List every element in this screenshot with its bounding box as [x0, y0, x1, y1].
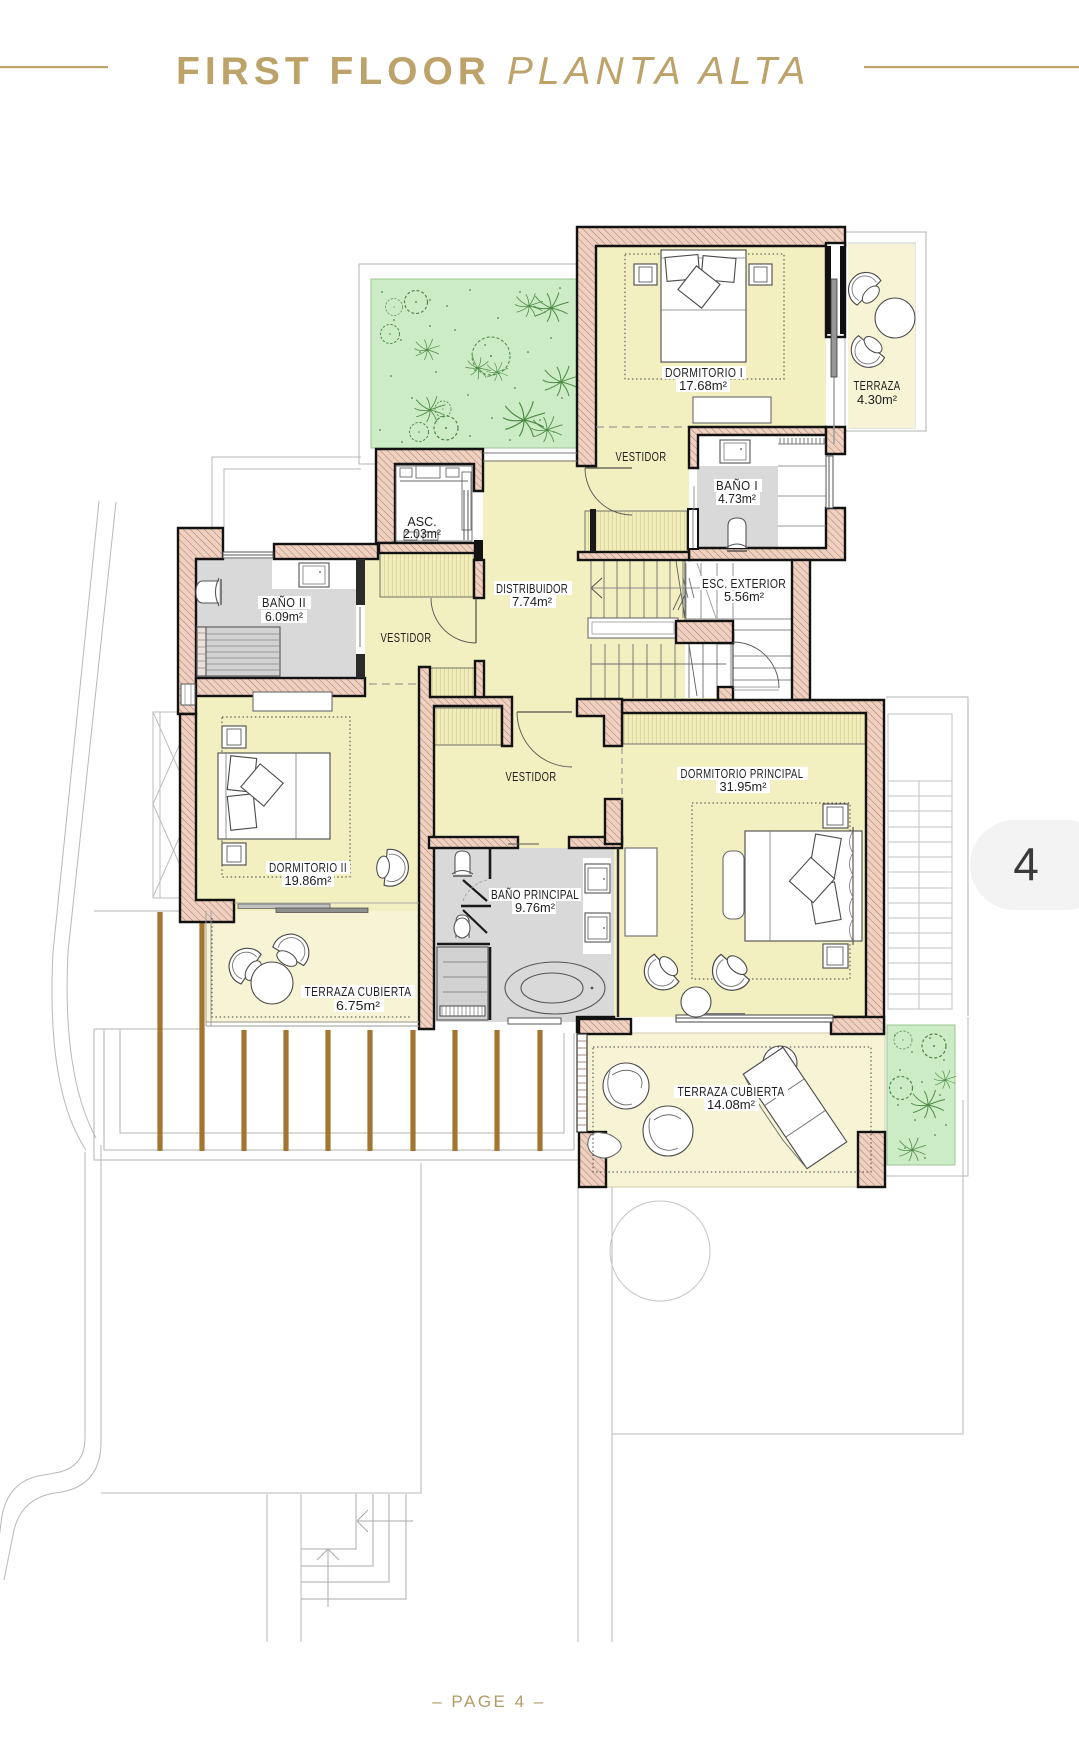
svg-text:7.74m²: 7.74m² [512, 595, 552, 609]
svg-text:VESTIDOR: VESTIDOR [506, 770, 557, 784]
svg-text:4.30m²: 4.30m² [857, 393, 897, 407]
svg-text:DORMITORIO I: DORMITORIO I [665, 366, 743, 380]
svg-text:5.56m²: 5.56m² [724, 590, 764, 604]
svg-text:4.73m²: 4.73m² [718, 492, 756, 506]
svg-text:TERRAZA CUBIERTA: TERRAZA CUBIERTA [305, 985, 412, 999]
svg-text:TERRAZA: TERRAZA [854, 379, 901, 393]
svg-text:17.68m²: 17.68m² [679, 379, 727, 393]
svg-text:4: 4 [1013, 838, 1039, 890]
svg-text:– PAGE 4 –: – PAGE 4 – [432, 1692, 546, 1711]
svg-text:BAÑO PRINCIPAL: BAÑO PRINCIPAL [491, 888, 579, 902]
svg-text:TERRAZA CUBIERTA: TERRAZA CUBIERTA [678, 1085, 785, 1099]
svg-text:VESTIDOR: VESTIDOR [381, 631, 432, 645]
svg-text:BAÑO II: BAÑO II [262, 596, 306, 610]
svg-text:9.76m²: 9.76m² [515, 901, 555, 915]
svg-text:FIRST FLOOR PLANTA ALTA: FIRST FLOOR PLANTA ALTA [176, 50, 810, 93]
svg-text:DISTRIBUIDOR: DISTRIBUIDOR [496, 582, 568, 596]
svg-text:2.03m²: 2.03m² [403, 527, 441, 541]
svg-text:14.08m²: 14.08m² [707, 1098, 755, 1112]
svg-text:DORMITORIO II: DORMITORIO II [269, 861, 347, 875]
svg-text:ESC. EXTERIOR: ESC. EXTERIOR [702, 577, 786, 591]
svg-text:31.95m²: 31.95m² [720, 780, 767, 794]
svg-text:DORMITORIO PRINCIPAL: DORMITORIO PRINCIPAL [681, 767, 804, 781]
svg-text:VESTIDOR: VESTIDOR [616, 450, 667, 464]
svg-text:19.86m²: 19.86m² [285, 874, 332, 888]
svg-text:BAÑO I: BAÑO I [716, 479, 758, 493]
svg-text:6.09m²: 6.09m² [265, 610, 303, 624]
svg-text:6.75m²: 6.75m² [336, 999, 380, 1013]
